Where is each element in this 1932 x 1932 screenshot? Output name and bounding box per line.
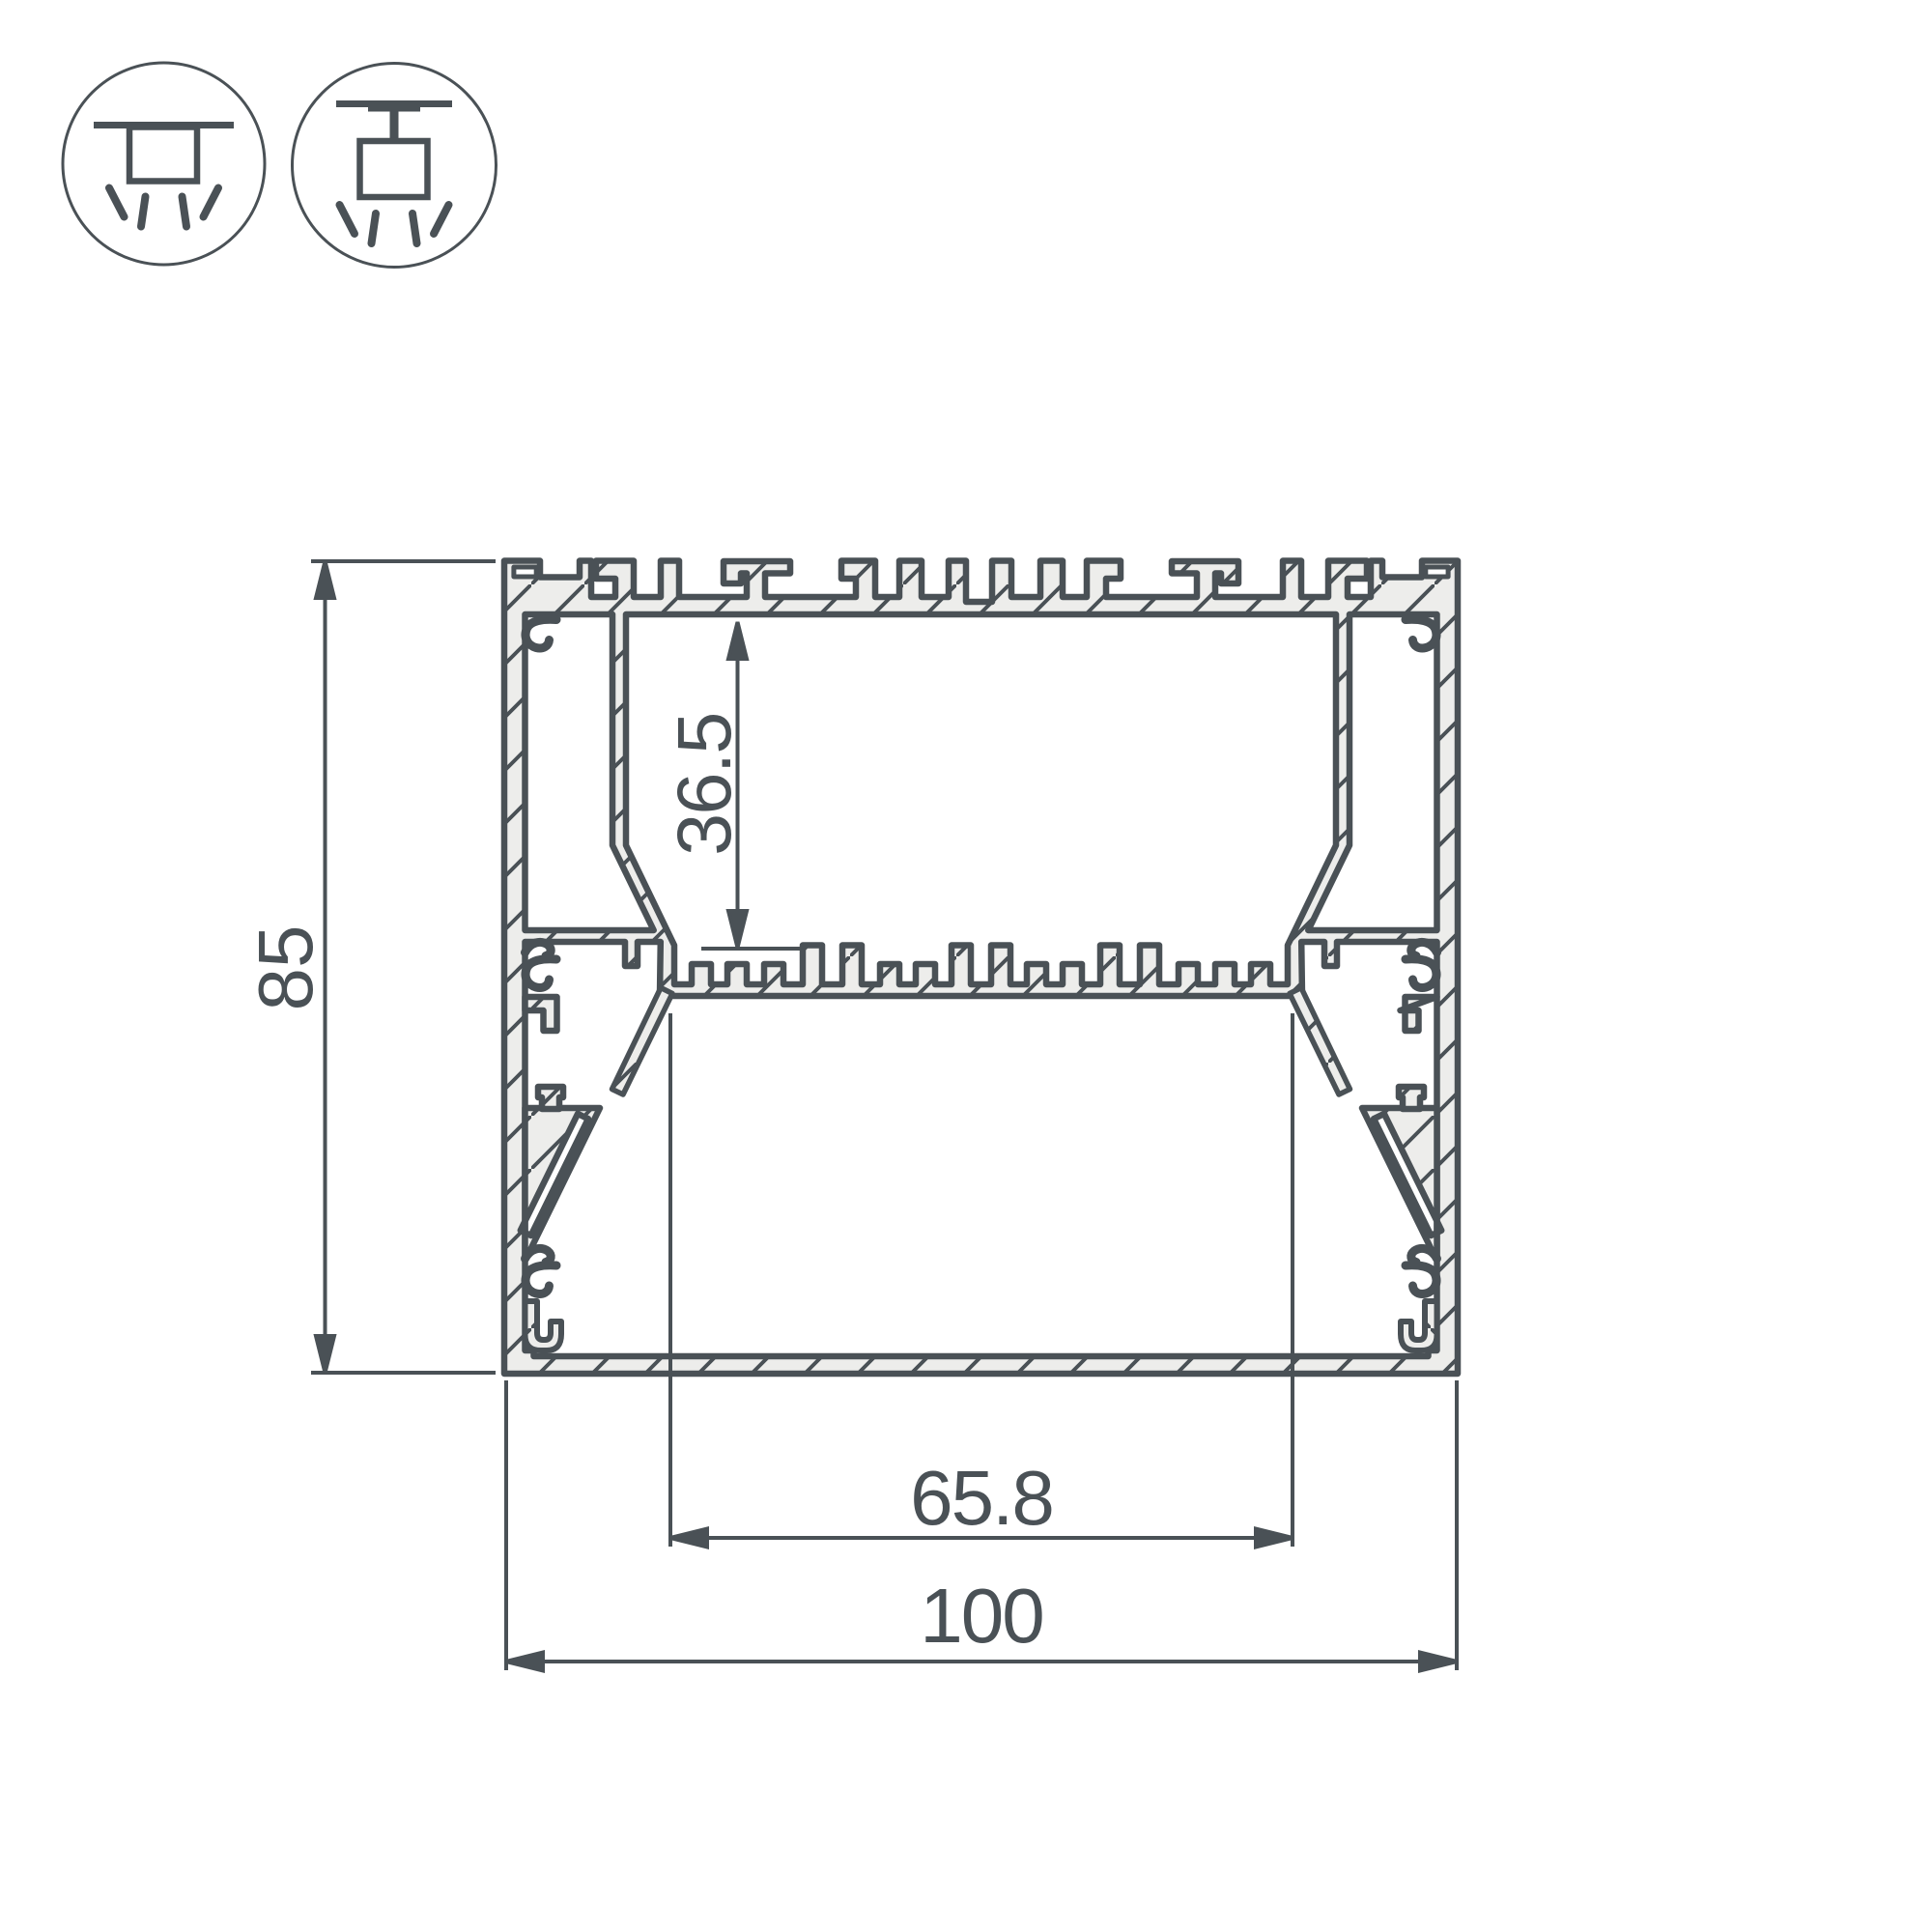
svg-text:85: 85: [242, 925, 328, 1011]
svg-text:36.5: 36.5: [661, 713, 747, 856]
svg-text:100: 100: [920, 1573, 1042, 1659]
svg-text:65.8: 65.8: [910, 1455, 1053, 1541]
